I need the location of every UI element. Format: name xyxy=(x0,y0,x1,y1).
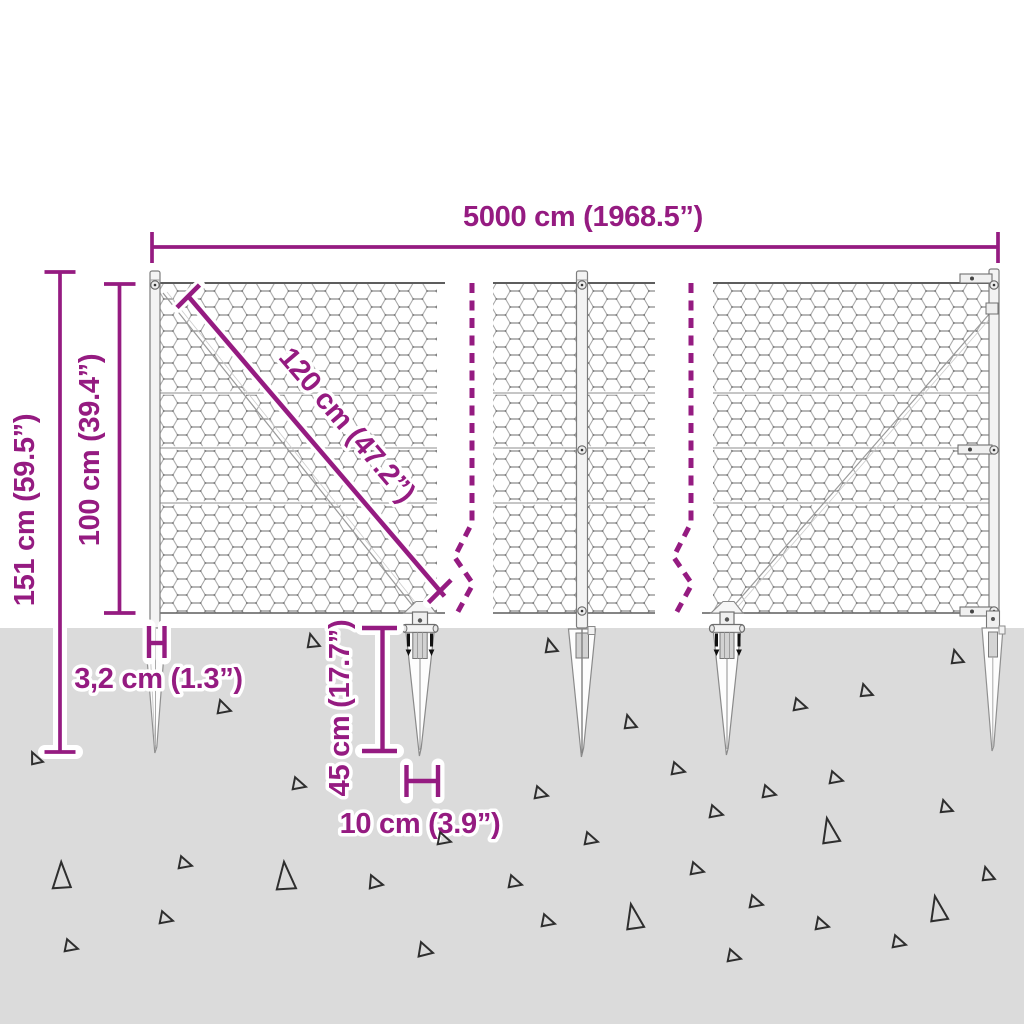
svg-text:45 cm (17.7”): 45 cm (17.7”) xyxy=(324,620,356,797)
svg-text:5000 cm (1968.5”): 5000 cm (1968.5”) xyxy=(463,201,703,233)
svg-text:10 cm (3.9”): 10 cm (3.9”) xyxy=(340,808,501,840)
svg-text:151 cm (59.5”): 151 cm (59.5”) xyxy=(9,414,41,606)
svg-text:3,2 cm (1.3”): 3,2 cm (1.3”) xyxy=(74,663,243,695)
svg-text:100 cm (39.4”): 100 cm (39.4”) xyxy=(74,354,106,546)
